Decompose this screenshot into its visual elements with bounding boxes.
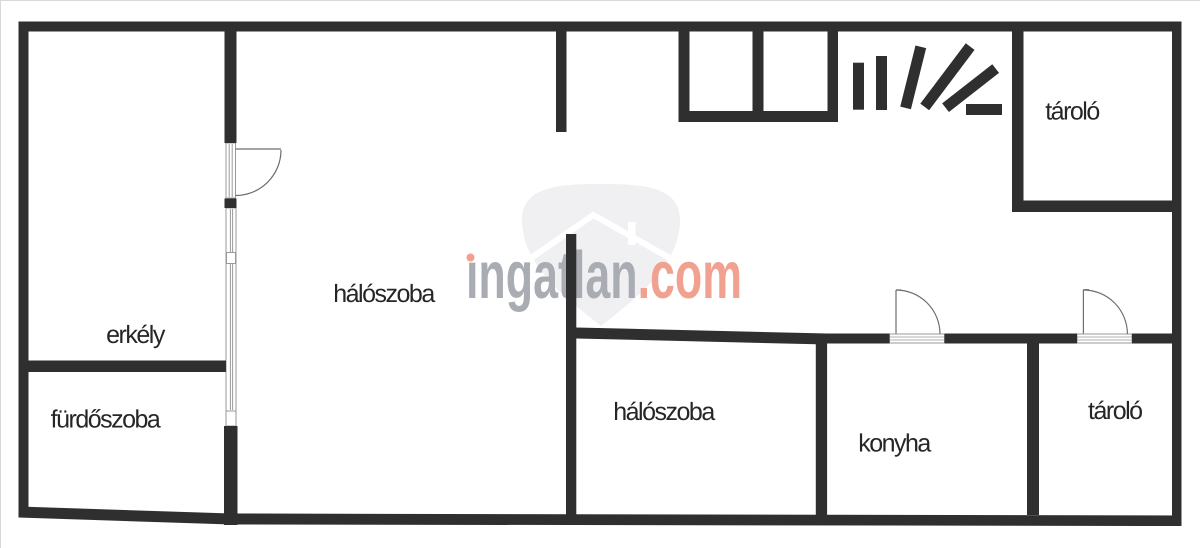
svg-text:tároló: tároló [1045,98,1099,126]
svg-text:fürdőszoba: fürdőszoba [51,406,161,434]
svg-text:.com: .com [638,238,742,313]
svg-text:hálószoba: hálószoba [613,398,715,426]
svg-text:tároló: tároló [1088,397,1142,425]
svg-text:ıngatlan: ıngatlan [466,238,638,313]
svg-text:erkély: erkély [106,321,166,349]
svg-text:hálószoba: hálószoba [333,280,435,308]
svg-text:konyha: konyha [858,430,931,458]
